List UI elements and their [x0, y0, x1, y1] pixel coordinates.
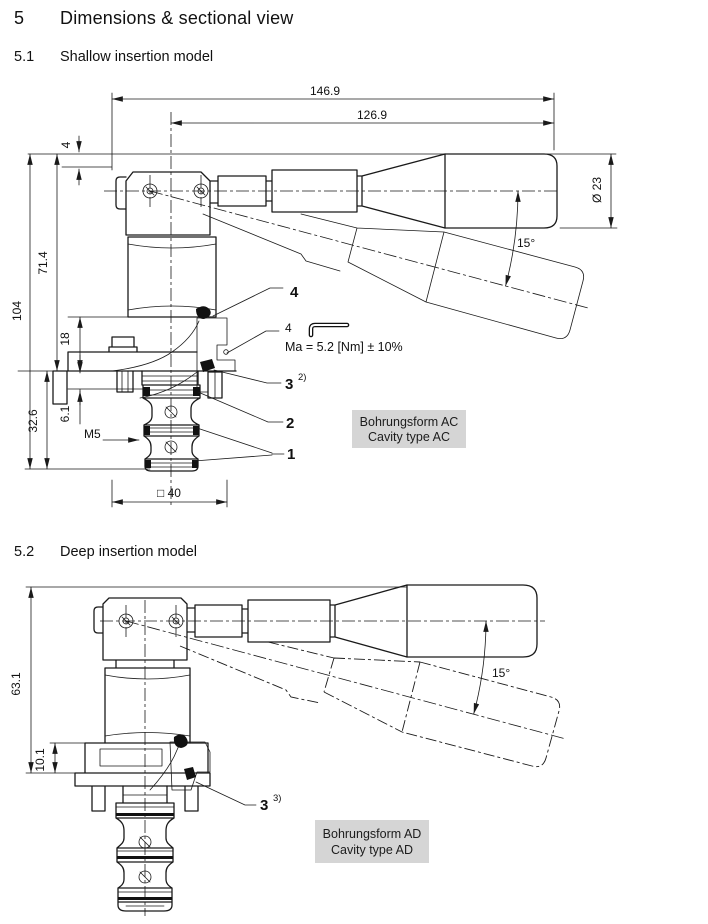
shallow-drawing: 146.9 126.9 Ø 23 15° 4 104 71.4 18 6.1 3… — [10, 84, 617, 507]
deep-section-hatch — [170, 742, 210, 790]
dim-text-63-1: 63.1 — [9, 672, 23, 696]
cavity-box-ad-line2: Cavity type AD — [331, 843, 413, 857]
leader-item4 — [213, 288, 283, 316]
leader-item2 — [198, 392, 283, 422]
dim-text-m5: M5 — [84, 427, 101, 441]
shallow-valve-body — [116, 154, 445, 317]
dim-text-126-9: 126.9 — [357, 108, 387, 122]
deep-extension-lines — [26, 587, 407, 773]
dim-text-32-6: 32.6 — [26, 409, 40, 433]
leader-item3 — [214, 370, 281, 383]
dim-text-146-9: 146.9 — [310, 84, 340, 98]
wrench-size: 4 — [285, 321, 292, 335]
callout-3: 3 — [285, 376, 293, 393]
leader-item1 — [194, 428, 284, 461]
clamp-screw-dot — [224, 350, 229, 355]
deep-centerlines — [100, 600, 566, 916]
callout-2: 2 — [286, 415, 294, 432]
dim-arc-15deg-deep — [474, 621, 486, 714]
dim-text-angle-2: 15° — [492, 666, 510, 680]
datasheet-page: 5Dimensions & sectional view 5.1Shallow … — [0, 0, 708, 924]
callout-4: 4 — [290, 284, 299, 301]
cavity-box-ac-line2: Cavity type AC — [368, 430, 450, 444]
dim-text-104: 104 — [10, 301, 24, 321]
dim-text-6-1: 6.1 — [58, 405, 72, 422]
cavity-box-ad-line1: Bohrungsform AD — [323, 827, 422, 841]
shallow-seals — [143, 306, 215, 468]
callout-3-footnote: 2) — [298, 372, 306, 383]
dim-text-10-1: 10.1 — [33, 748, 47, 772]
dim-text-angle-1: 15° — [517, 236, 535, 250]
deep-callout-3: 3 — [260, 797, 268, 814]
deep-hex-chamfer-arcs — [105, 675, 190, 736]
deep-valve-body — [94, 585, 407, 743]
shallow-extension-lines — [18, 93, 617, 507]
torque-note: Ma = 5.2 [Nm] ± 10% — [285, 340, 403, 354]
dim-text-square-40: □ 40 — [157, 486, 181, 500]
deep-callout-3-footnote: 3) — [273, 793, 281, 804]
shallow-tilted-lever — [203, 214, 584, 339]
dim-text-71-4: 71.4 — [36, 251, 50, 275]
dim-text-dia-23: Ø 23 — [590, 177, 604, 203]
shallow-hex-chamfer-arcs — [128, 244, 216, 310]
deep-drawing: 63.1 10.1 15° 3 3) Bohrungsform AD Cavit… — [9, 585, 566, 916]
technical-drawing-canvas: 146.9 126.9 Ø 23 15° 4 104 71.4 18 6.1 3… — [0, 0, 708, 924]
dim-text-4: 4 — [59, 141, 73, 148]
cavity-box-ac: Bohrungsform AC Cavity type AC — [352, 410, 466, 448]
cavity-box-ac-line1: Bohrungsform AC — [360, 415, 459, 429]
callout-1: 1 — [287, 446, 295, 463]
allen-key-icon — [311, 325, 347, 335]
leader-wrench-note — [227, 331, 279, 353]
cavity-box-ad: Bohrungsform AD Cavity type AD — [315, 820, 429, 863]
deep-tilted-lever — [180, 642, 560, 767]
dim-text-18: 18 — [58, 332, 72, 346]
